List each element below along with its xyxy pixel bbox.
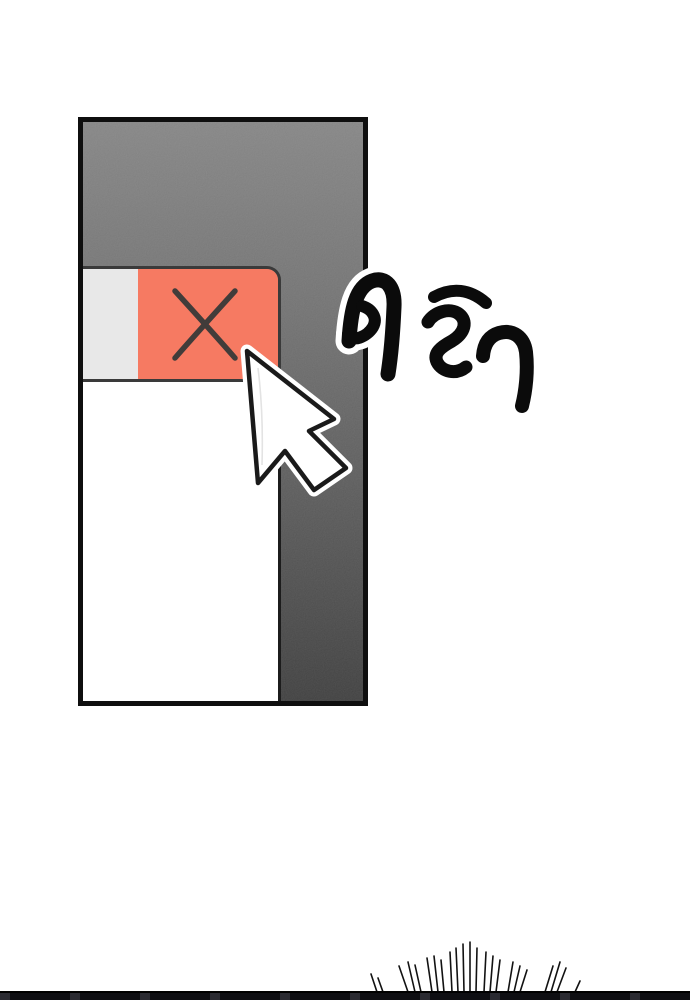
mouse-cursor-icon (247, 351, 346, 490)
comic-panel-scene: คลิก (0, 0, 690, 1000)
hair-spikes (371, 942, 580, 992)
overlay-art: คลิก (0, 0, 690, 1000)
svg-text:คลิก: คลิก (0, 0, 2, 1)
next-panel-edge (0, 991, 690, 1000)
sfx-click-text: คลิก (0, 0, 527, 406)
